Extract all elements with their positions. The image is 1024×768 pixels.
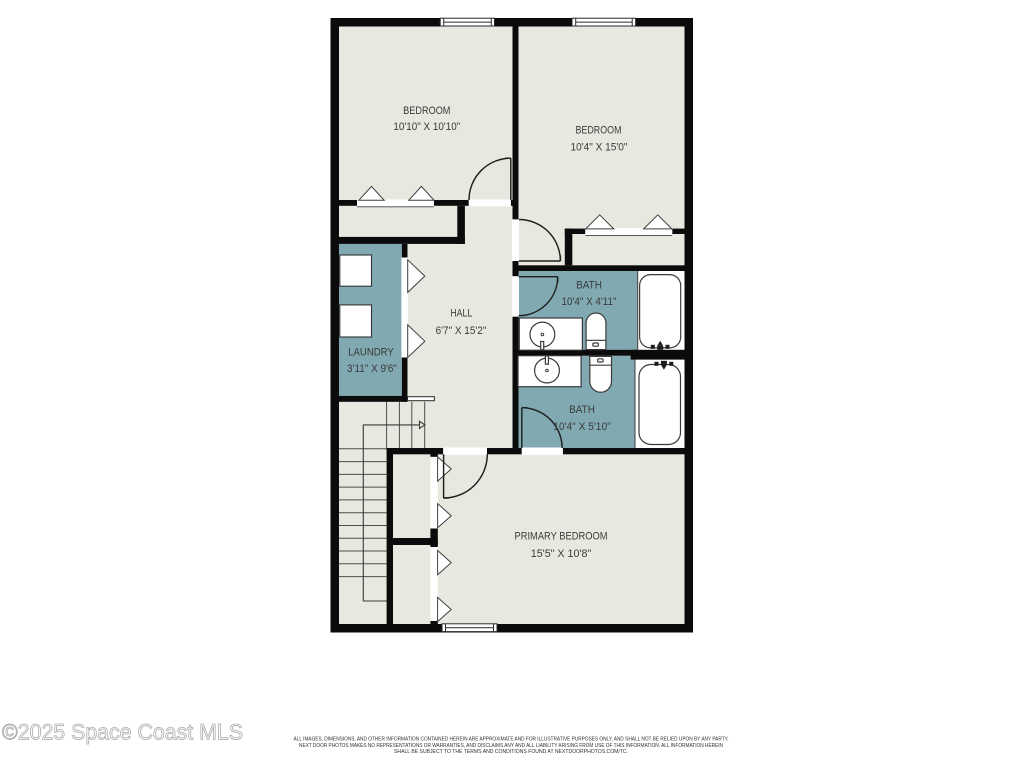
svg-text:10'4" X 4'11": 10'4" X 4'11" xyxy=(562,296,617,308)
svg-text:ALL IMAGES, DIMENSIONS, AND OT: ALL IMAGES, DIMENSIONS, AND OTHER INFORM… xyxy=(294,737,729,743)
svg-text:©2025 Space Coast MLS: ©2025 Space Coast MLS xyxy=(2,719,243,744)
svg-text:10'4" X 15'0": 10'4" X 15'0" xyxy=(571,142,628,154)
svg-text:BATH: BATH xyxy=(569,404,595,416)
svg-text:HALL: HALL xyxy=(450,308,472,320)
svg-text:10'4" X 5'10": 10'4" X 5'10" xyxy=(553,421,610,433)
svg-text:LAUNDRY: LAUNDRY xyxy=(348,346,394,358)
svg-text:SHALL BE SUBJECT TO THE TERMS: SHALL BE SUBJECT TO THE TERMS AND CONDIT… xyxy=(394,749,628,755)
svg-text:NEXT DOOR PHOTOS MAKES NO REPR: NEXT DOOR PHOTOS MAKES NO REPRESENTATION… xyxy=(299,743,723,749)
svg-text:15'5" X 10'8": 15'5" X 10'8" xyxy=(531,548,592,560)
svg-text:BEDROOM: BEDROOM xyxy=(403,105,450,117)
svg-text:BEDROOM: BEDROOM xyxy=(576,124,622,136)
svg-text:BATH: BATH xyxy=(576,279,602,291)
svg-text:PRIMARY BEDROOM: PRIMARY BEDROOM xyxy=(515,531,608,543)
svg-text:10'10" X 10'10": 10'10" X 10'10" xyxy=(393,121,460,133)
svg-text:6'7" X 15'2": 6'7" X 15'2" xyxy=(436,325,487,337)
svg-text:3'11" X 9'6": 3'11" X 9'6" xyxy=(347,363,397,375)
